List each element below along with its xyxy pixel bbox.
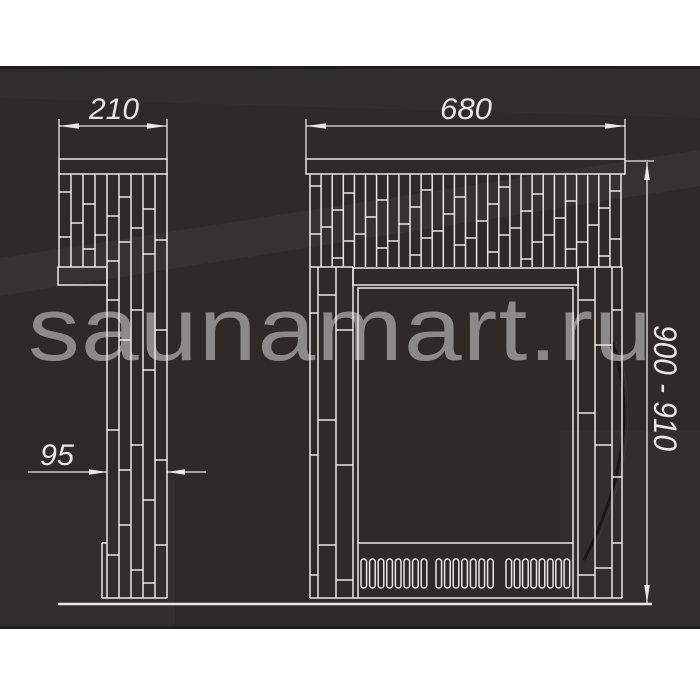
dim-210-label: 210 (88, 93, 139, 126)
dim-680-label: 680 (440, 93, 492, 126)
blueprint-canvas: saunamart.ru (0, 0, 700, 700)
dim-900-910-label: 900 - 910 (647, 325, 683, 451)
dim-95-label: 95 (40, 439, 74, 472)
